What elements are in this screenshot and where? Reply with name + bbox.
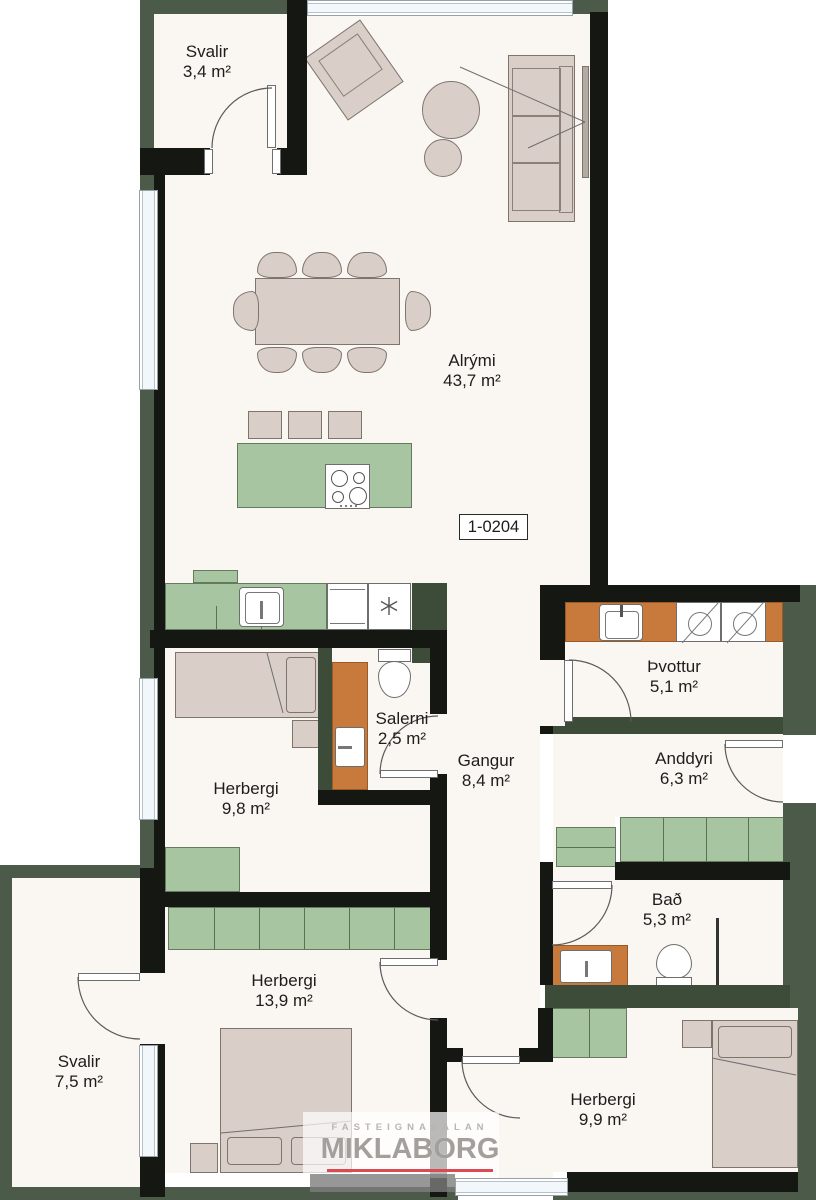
room-area: 7,5 m²	[55, 1072, 103, 1092]
window	[455, 1178, 568, 1196]
sofa-cushion	[512, 162, 561, 211]
wardrobe	[550, 1008, 627, 1058]
room-label-alrymi: Alrými 43,7 m²	[443, 351, 501, 391]
sofa-cushion	[512, 115, 561, 164]
faucet-icon	[260, 601, 263, 619]
door-opening	[140, 973, 165, 1044]
room-label-anddyri: Anddyri 6,3 m²	[655, 749, 713, 789]
room-label-thvottur: Þvottur 5,1 m²	[647, 657, 701, 697]
door-leaf	[380, 770, 438, 778]
room-label-bad: Bað 5,3 m²	[643, 890, 691, 930]
pillow	[227, 1137, 282, 1165]
door-leaf	[380, 958, 438, 966]
room-label-herbergi-98: Herbergi 9,8 m²	[213, 779, 278, 819]
dining-chair	[233, 291, 259, 331]
room-area: 5,1 m²	[647, 677, 701, 697]
room-name: Alrými	[443, 351, 501, 371]
logo-tagline: FASTEIGNASALAN	[322, 1122, 498, 1133]
toilet	[656, 944, 692, 979]
wall-segment	[615, 862, 790, 880]
wall-segment	[553, 717, 783, 734]
room-name: Anddyri	[655, 749, 713, 769]
floor-balcony-bottom	[12, 878, 140, 1187]
wall-segment	[565, 585, 800, 602]
room-name: Herbergi	[251, 971, 316, 991]
door-opening	[430, 714, 447, 774]
room-name: Þvottur	[647, 657, 701, 677]
door-leaf	[552, 881, 612, 889]
wall-segment	[590, 12, 608, 585]
room-area: 9,8 m²	[213, 799, 278, 819]
room-area: 43,7 m²	[443, 371, 501, 391]
side-table-large	[422, 81, 480, 139]
window	[139, 190, 158, 390]
dining-chair	[347, 252, 387, 278]
room-label-svalir-bottom: Svalir 7,5 m²	[55, 1052, 103, 1092]
wc-sink	[335, 727, 365, 767]
door-jamb	[204, 149, 213, 174]
washer-icon	[676, 602, 721, 642]
floor-gangur	[447, 585, 540, 1062]
room-name: Gangur	[458, 751, 515, 771]
floorplan-canvas: Svalir 3,4 m² Alrými 43,7 m² Þvottur 5,1…	[0, 0, 816, 1200]
window	[307, 0, 573, 16]
room-name: Bað	[643, 890, 691, 910]
wc-vanity	[332, 662, 368, 790]
room-label-salerni: Salerni 2,5 m²	[376, 709, 429, 749]
bar-stool	[248, 411, 282, 439]
door-opening	[430, 960, 447, 1018]
logo-gray-bar	[310, 1174, 455, 1192]
wall-segment	[540, 726, 553, 734]
dining-chair	[302, 252, 342, 278]
faucet-icon	[338, 746, 352, 749]
pillow	[718, 1026, 792, 1058]
sofa-cushion	[512, 68, 561, 117]
bath-sink	[560, 950, 612, 983]
wall-segment	[287, 0, 307, 152]
entry-cabinet	[556, 827, 616, 867]
shower-divider	[716, 918, 719, 985]
dresser	[165, 847, 240, 892]
wall-segment	[318, 648, 332, 805]
room-area: 3,4 m²	[183, 62, 231, 82]
window	[139, 1045, 158, 1157]
bar-stool	[288, 411, 322, 439]
wardrobe	[168, 907, 437, 950]
logo-red-underline	[327, 1169, 493, 1172]
pillow	[286, 657, 316, 713]
wall-segment	[538, 1008, 553, 1062]
nightstand	[190, 1143, 218, 1173]
door-leaf	[267, 85, 276, 148]
nightstand	[682, 1020, 712, 1048]
sofa	[508, 55, 575, 222]
room-name: Svalir	[55, 1052, 103, 1072]
wall-segment	[567, 1172, 798, 1192]
room-name: Herbergi	[213, 779, 278, 799]
room-name: Salerni	[376, 709, 429, 729]
bar-stool	[328, 411, 362, 439]
wall-segment	[140, 0, 307, 14]
room-area: 6,3 m²	[655, 769, 713, 789]
wall-segment	[140, 0, 154, 152]
laundry-sink	[599, 604, 643, 641]
wall-segment	[277, 148, 307, 175]
cooktop	[325, 464, 370, 509]
dining-chair	[257, 252, 297, 278]
wall-segment	[447, 1048, 463, 1062]
dishwasher	[327, 583, 368, 630]
kitchen-upper-cabinet	[193, 570, 238, 583]
door-opening	[783, 735, 816, 803]
door-opening	[210, 148, 277, 175]
door-jamb	[272, 149, 281, 174]
wall-segment	[798, 1008, 816, 1200]
kitchen-sink	[239, 587, 284, 627]
room-area: 13,9 m²	[251, 991, 316, 1011]
faucet-icon	[620, 605, 623, 617]
dryer-icon	[721, 602, 766, 642]
room-name: Svalir	[183, 42, 231, 62]
room-label-gangur: Gangur 8,4 m²	[458, 751, 515, 791]
room-name: Herbergi	[570, 1090, 635, 1110]
wall-segment	[150, 630, 447, 648]
door-leaf	[462, 1056, 520, 1064]
fridge	[368, 583, 411, 630]
entry-wardrobe	[620, 817, 790, 862]
tv	[582, 66, 589, 178]
armchair-seat	[318, 33, 383, 97]
wall-segment	[540, 585, 565, 660]
sofa-back	[559, 66, 573, 213]
room-area: 2,5 m²	[376, 729, 429, 749]
door-opening	[540, 660, 565, 726]
room-area: 5,3 m²	[643, 910, 691, 930]
dining-table	[255, 278, 400, 345]
wall-segment	[430, 648, 447, 716]
room-label-herbergi-99: Herbergi 9,9 m²	[570, 1090, 635, 1130]
room-label-svalir-top: Svalir 3,4 m²	[183, 42, 231, 82]
door-leaf	[564, 660, 573, 722]
wall-segment	[545, 985, 790, 1008]
wall-segment	[318, 790, 447, 805]
door-leaf	[78, 973, 140, 981]
wall-segment	[0, 865, 140, 878]
room-area: 9,9 m²	[570, 1110, 635, 1130]
faucet-icon	[585, 961, 588, 977]
wall-segment	[140, 892, 447, 907]
unit-label: 1-0204	[459, 514, 528, 540]
wall-segment	[140, 148, 210, 175]
window	[139, 678, 158, 820]
side-table-small	[424, 139, 462, 177]
room-area: 8,4 m²	[458, 771, 515, 791]
logo-brand: MIKLABORG	[318, 1133, 502, 1166]
door-leaf	[725, 740, 783, 748]
room-label-herbergi-139: Herbergi 13,9 m²	[251, 971, 316, 1011]
wall-segment	[0, 865, 12, 1200]
